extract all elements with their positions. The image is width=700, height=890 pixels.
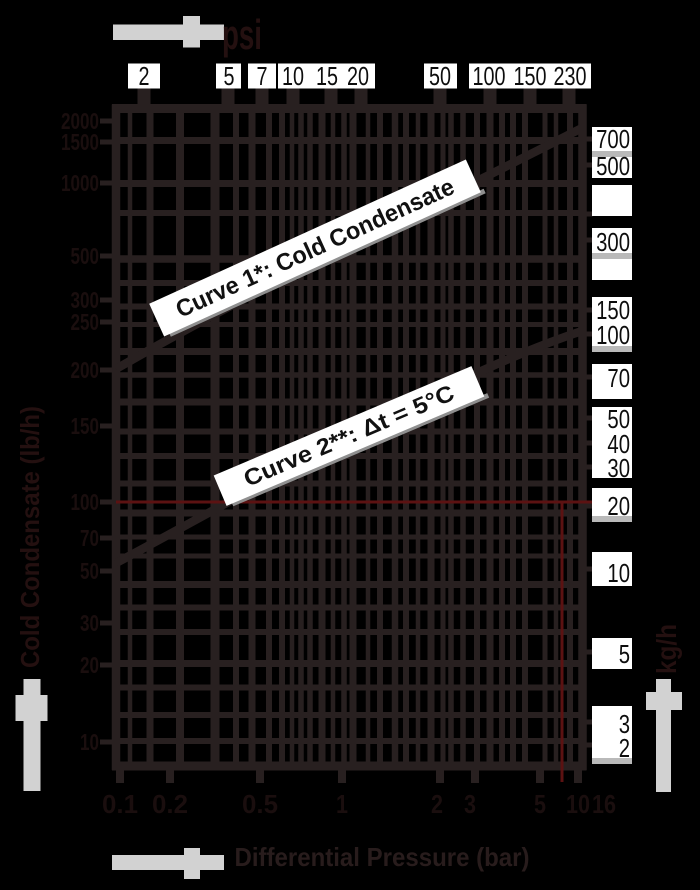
svg-text:200: 200: [71, 357, 100, 383]
svg-text:kg/h: kg/h: [651, 624, 682, 674]
svg-text:2: 2: [431, 789, 443, 819]
svg-text:50: 50: [80, 558, 99, 584]
svg-text:0.2: 0.2: [152, 789, 188, 819]
svg-text:Cold Condensate (lb/h): Cold Condensate (lb/h): [15, 406, 45, 668]
svg-text:1500: 1500: [61, 129, 99, 155]
svg-text:250: 250: [71, 309, 100, 335]
svg-text:16: 16: [592, 789, 616, 819]
svg-text:300: 300: [596, 227, 630, 257]
svg-text:2: 2: [139, 61, 150, 91]
svg-text:2: 2: [619, 733, 630, 763]
svg-text:psi: psi: [222, 11, 262, 58]
svg-text:50: 50: [429, 61, 451, 91]
svg-text:10: 10: [566, 789, 590, 819]
svg-text:70: 70: [607, 363, 630, 393]
svg-text:10: 10: [80, 729, 99, 755]
svg-text:150: 150: [71, 413, 100, 439]
svg-text:500: 500: [596, 151, 630, 181]
svg-text:15: 15: [316, 61, 338, 91]
svg-text:700: 700: [596, 124, 630, 154]
svg-text:7: 7: [257, 61, 268, 91]
svg-text:230: 230: [554, 61, 587, 91]
svg-text:1: 1: [336, 789, 348, 819]
svg-text:3: 3: [464, 789, 476, 819]
svg-text:20: 20: [347, 61, 369, 91]
svg-text:5: 5: [224, 61, 235, 91]
svg-text:20: 20: [80, 652, 99, 678]
svg-text:150: 150: [514, 61, 547, 91]
svg-text:5: 5: [619, 639, 630, 669]
svg-text:0.1: 0.1: [102, 789, 138, 819]
svg-text:30: 30: [80, 610, 99, 636]
svg-text:500: 500: [71, 243, 100, 269]
svg-text:20: 20: [607, 491, 630, 521]
svg-text:10: 10: [607, 558, 630, 588]
svg-text:100: 100: [473, 61, 506, 91]
svg-text:70: 70: [80, 525, 99, 551]
svg-text:100: 100: [596, 320, 630, 350]
svg-text:30: 30: [607, 453, 630, 483]
svg-text:5: 5: [534, 789, 546, 819]
svg-text:Differential Pressure (bar): Differential Pressure (bar): [235, 842, 530, 872]
svg-text:0.5: 0.5: [242, 789, 278, 819]
svg-text:100: 100: [71, 489, 100, 515]
svg-text:10: 10: [282, 61, 304, 91]
svg-text:1000: 1000: [61, 170, 99, 196]
